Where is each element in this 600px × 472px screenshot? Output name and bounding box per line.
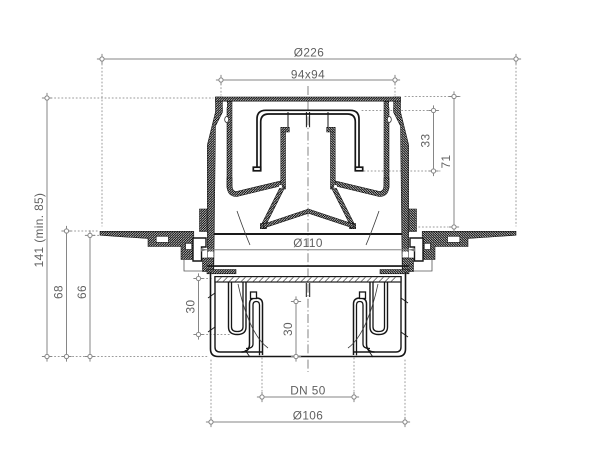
svg-text:66: 66 <box>75 285 89 299</box>
svg-text:30: 30 <box>184 300 198 314</box>
svg-text:33: 33 <box>419 134 433 148</box>
svg-text:68: 68 <box>52 285 66 299</box>
svg-text:Ø110: Ø110 <box>293 236 323 250</box>
svg-text:DN 50: DN 50 <box>290 383 325 397</box>
svg-text:94x94: 94x94 <box>291 68 325 82</box>
svg-text:30: 30 <box>281 322 295 336</box>
svg-text:Ø226: Ø226 <box>294 46 324 60</box>
svg-text:71: 71 <box>439 155 453 169</box>
svg-text:Ø106: Ø106 <box>293 409 323 423</box>
svg-text:141 (min. 85): 141 (min. 85) <box>32 193 46 268</box>
